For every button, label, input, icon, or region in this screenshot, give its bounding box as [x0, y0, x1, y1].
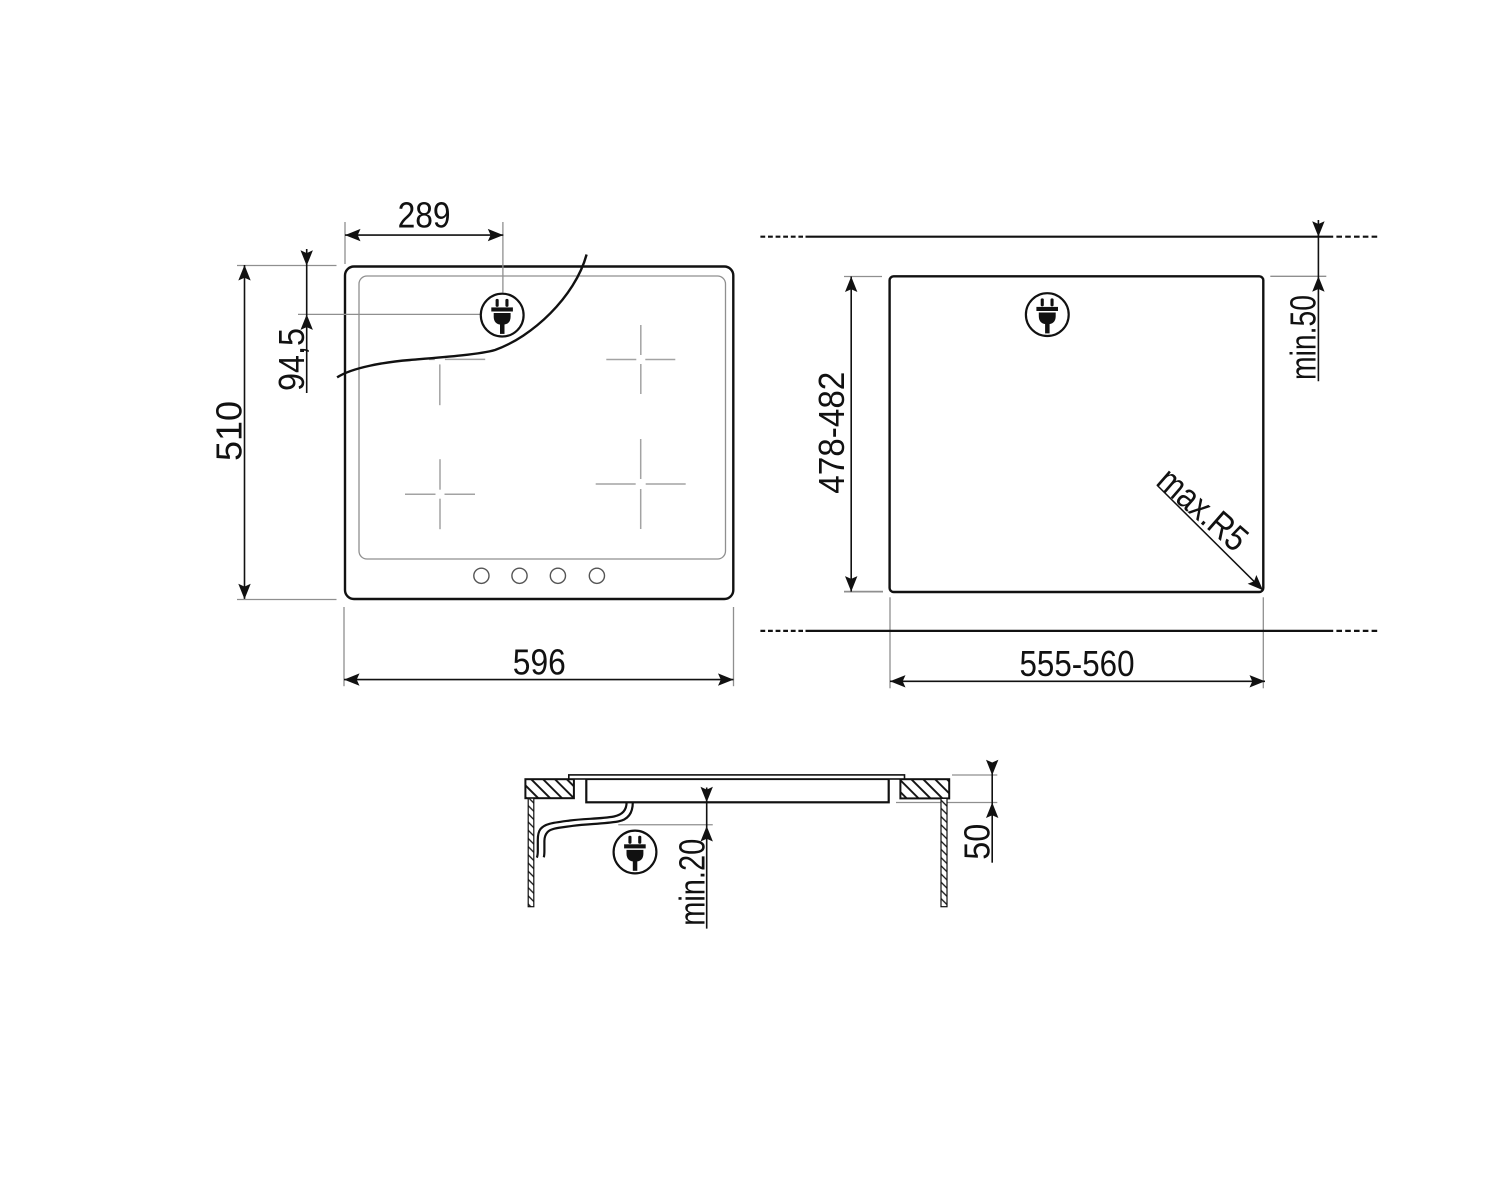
svg-text:min.20: min.20 [671, 839, 712, 926]
svg-text:596: 596 [513, 642, 566, 683]
svg-text:289: 289 [398, 195, 451, 236]
svg-text:478-482: 478-482 [811, 372, 852, 494]
svg-text:555-560: 555-560 [1020, 643, 1135, 684]
svg-text:50: 50 [956, 824, 997, 860]
svg-text:510: 510 [209, 401, 250, 461]
svg-text:min.50: min.50 [1283, 295, 1324, 380]
svg-text:94,5: 94,5 [271, 328, 312, 391]
